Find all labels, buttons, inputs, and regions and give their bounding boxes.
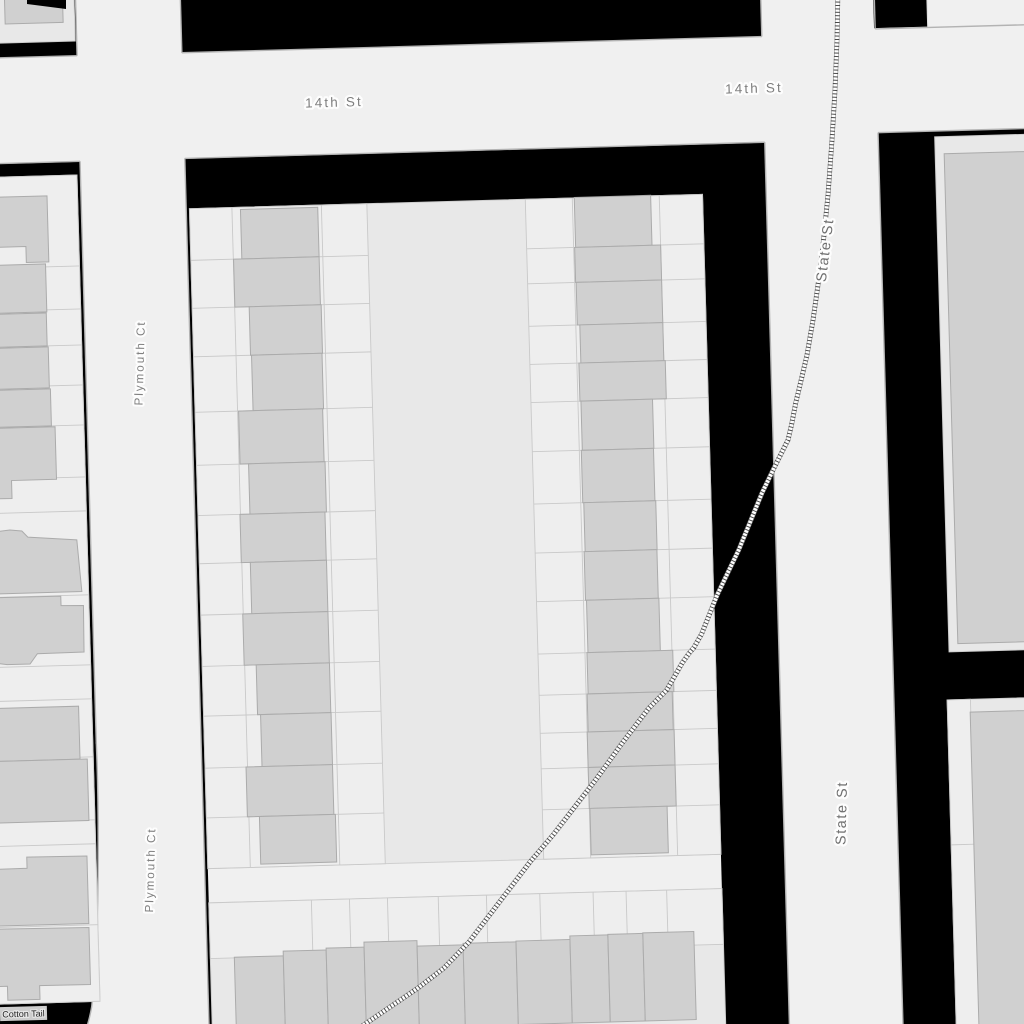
- svg-text:14th St: 14th St: [305, 94, 363, 111]
- svg-text:14th St: 14th St: [725, 80, 783, 97]
- svg-text:Cotton Tail: Cotton Tail: [2, 1008, 45, 1019]
- svg-text:State St: State St: [833, 781, 851, 845]
- svg-text:Plymouth Ct: Plymouth Ct: [142, 827, 158, 913]
- svg-text:Plymouth Ct: Plymouth Ct: [132, 320, 148, 406]
